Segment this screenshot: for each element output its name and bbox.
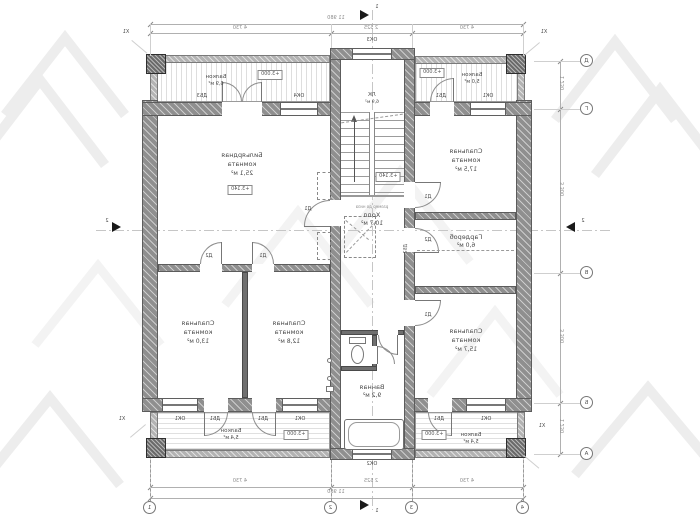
door-opening bbox=[252, 264, 274, 272]
door-tag: ДБ3 bbox=[190, 94, 214, 100]
door-tag: Д1 bbox=[298, 207, 318, 213]
column bbox=[146, 438, 166, 458]
door-opening bbox=[200, 264, 222, 272]
door-opening bbox=[222, 102, 262, 116]
section-arrow-icon bbox=[566, 222, 575, 232]
room-area: 9,2 м² bbox=[346, 393, 398, 400]
section-label: 1 bbox=[372, 509, 382, 515]
dim-text: 3 300 bbox=[560, 319, 566, 353]
grid-bubble: 4 bbox=[516, 501, 529, 514]
door-leaf bbox=[397, 335, 398, 355]
room-label: Бильярдная bbox=[192, 152, 292, 159]
dim-text: 2 525 bbox=[341, 479, 401, 485]
stair-landing-edge bbox=[341, 195, 404, 197]
balcony-label: Балкон bbox=[186, 74, 246, 80]
partition bbox=[341, 366, 377, 371]
corner-axis-label: X1 bbox=[114, 417, 130, 423]
door-opening bbox=[404, 182, 415, 208]
door-leaf bbox=[377, 346, 378, 364]
grid-line bbox=[412, 460, 413, 501]
door-opening bbox=[330, 200, 341, 226]
section-label: 2 bbox=[578, 219, 588, 225]
window bbox=[280, 102, 318, 116]
door-tag: ДБ1 bbox=[200, 417, 230, 423]
corner-axis-label: X1 bbox=[118, 30, 134, 36]
door-leaf bbox=[275, 412, 276, 436]
door-opening bbox=[404, 300, 415, 326]
window bbox=[466, 398, 506, 412]
grid-bubble: Д bbox=[580, 54, 593, 67]
door-tag: ДБ1 bbox=[426, 417, 452, 423]
balcony-rail bbox=[150, 450, 330, 458]
corner-axis-label: X1 bbox=[536, 30, 552, 36]
dim-text: 2 525 bbox=[341, 26, 401, 32]
dim-text: 4 730 bbox=[437, 26, 497, 32]
hall-note: размер до низа bbox=[342, 205, 402, 210]
door-leaf bbox=[304, 226, 330, 227]
door-leaf bbox=[415, 252, 439, 253]
level-mark: +3.140 bbox=[228, 185, 253, 195]
room-area: 10,7 м² bbox=[346, 221, 398, 228]
section-label: 2 bbox=[102, 219, 112, 225]
door-leaf bbox=[221, 242, 222, 264]
window-tag: ОК1 bbox=[162, 417, 198, 423]
floor-plan: Бильярдная комната 25,1 м² +3.140 Спальн… bbox=[0, 0, 700, 525]
room-label: Спальная bbox=[416, 328, 516, 335]
extension-line bbox=[534, 454, 580, 455]
door-tag: Д2 bbox=[418, 238, 438, 244]
extension-line bbox=[534, 273, 580, 274]
room-label: Спальная bbox=[158, 320, 238, 327]
grid-bubble: 3 bbox=[405, 501, 418, 514]
grid-bubble: В bbox=[580, 266, 593, 279]
level-mark: +3.140 bbox=[376, 172, 401, 182]
window-tag: ОК1 bbox=[282, 417, 318, 423]
dimension-line bbox=[150, 487, 523, 488]
door-tag: Д2 bbox=[198, 254, 220, 260]
column bbox=[506, 54, 526, 74]
room-area: 6,0 м² bbox=[416, 243, 516, 250]
room-label: комната bbox=[250, 329, 328, 336]
toilet-tank bbox=[349, 337, 366, 344]
dim-text: 11 980 bbox=[306, 490, 366, 496]
wall bbox=[415, 212, 516, 220]
balcony-area: 6,9 м² bbox=[186, 82, 246, 88]
stair-area: 6,9 м² bbox=[348, 100, 396, 105]
dimension-line bbox=[150, 33, 523, 34]
door-opening bbox=[204, 398, 228, 412]
column bbox=[146, 54, 166, 74]
level-mark: +3.000 bbox=[284, 430, 309, 440]
grid-bubble: 2 bbox=[324, 501, 337, 514]
wardrobe-shelf-line bbox=[417, 250, 514, 251]
stair-label: ЛК bbox=[348, 92, 396, 98]
balcony-area: 5,0 м² bbox=[444, 80, 500, 86]
grid-bubble: А bbox=[580, 447, 593, 460]
room-label: Спальная bbox=[416, 148, 516, 155]
grid-bubble: 1 bbox=[143, 501, 156, 514]
balcony-label: Балкон bbox=[198, 428, 264, 434]
toilet-bowl bbox=[351, 345, 364, 364]
door-leaf bbox=[415, 182, 441, 183]
door-tag: Д1 bbox=[418, 195, 438, 201]
grid-line bbox=[331, 460, 332, 501]
room-area: 12,8 м² bbox=[250, 339, 328, 346]
door-opening bbox=[430, 102, 454, 116]
balcony-label: Балкон bbox=[442, 432, 500, 438]
section-label: 1 bbox=[372, 5, 382, 11]
grid-line bbox=[150, 460, 151, 501]
balcony-rail bbox=[150, 55, 330, 63]
extension-line bbox=[534, 61, 580, 62]
window-tag: ОК2 bbox=[352, 462, 392, 468]
room-label: комната bbox=[416, 157, 516, 164]
door-tag: ДБ1 bbox=[248, 417, 278, 423]
door-opening bbox=[428, 398, 452, 412]
dim-text: 1 230 bbox=[560, 409, 566, 443]
bathtub-inner bbox=[348, 422, 400, 447]
window-tag: ОК1 bbox=[466, 417, 506, 423]
stair-direction-line bbox=[354, 122, 355, 182]
room-area: 15,7 м² bbox=[416, 347, 516, 354]
level-mark: +3.000 bbox=[422, 430, 447, 440]
extension-line bbox=[331, 24, 332, 48]
window bbox=[470, 102, 506, 116]
balcony-label: Балкон bbox=[444, 72, 500, 78]
room-area: 17,5 м² bbox=[416, 167, 516, 174]
door-opening bbox=[252, 398, 276, 412]
grid-line bbox=[523, 460, 524, 501]
door-leaf bbox=[261, 82, 262, 102]
extension-line bbox=[412, 24, 413, 48]
dim-text: 11 980 bbox=[306, 16, 366, 22]
extension-line bbox=[534, 109, 580, 110]
extension-line bbox=[523, 24, 524, 56]
wall bbox=[516, 100, 532, 412]
room-label: Спальная bbox=[250, 320, 328, 327]
door-tag: Д1 bbox=[252, 254, 274, 260]
door-leaf bbox=[415, 300, 441, 301]
dim-text: 4 730 bbox=[210, 479, 270, 485]
pipe-box bbox=[326, 386, 334, 392]
window-tag: ОК1 bbox=[470, 94, 506, 100]
door-tag: ДБ1 bbox=[428, 94, 454, 100]
pipe-riser bbox=[327, 358, 332, 363]
dim-text: 1 230 bbox=[560, 66, 566, 100]
wall bbox=[158, 264, 330, 272]
grid-bubble: Б bbox=[580, 396, 593, 409]
extension-line bbox=[534, 403, 580, 404]
wall bbox=[142, 100, 158, 412]
dimension-line bbox=[560, 61, 561, 454]
level-mark: +3.000 bbox=[258, 70, 283, 80]
stair-stringer bbox=[369, 112, 375, 196]
flue-shaft bbox=[317, 172, 331, 200]
level-mark: +3.000 bbox=[420, 68, 445, 78]
window bbox=[162, 398, 198, 412]
room-area: 13,0 м² bbox=[158, 339, 238, 346]
door-tag: Д1 bbox=[418, 313, 438, 319]
section-arrow-icon bbox=[360, 500, 369, 510]
dim-text: 3 300 bbox=[560, 172, 566, 206]
balcony-area: 5,4 м² bbox=[198, 436, 264, 442]
door-leaf bbox=[252, 242, 253, 264]
grid-bubble: Г bbox=[580, 102, 593, 115]
window-tag: ОК4 bbox=[280, 94, 318, 100]
dim-text: 4 730 bbox=[437, 479, 497, 485]
wall bbox=[330, 48, 341, 460]
balcony-area: 5,4 м² bbox=[442, 440, 500, 446]
pipe-riser bbox=[327, 376, 332, 381]
room-label: Холл bbox=[346, 212, 398, 219]
room-label: Ванная bbox=[346, 384, 398, 391]
extension-line bbox=[150, 24, 151, 56]
wall bbox=[415, 286, 516, 294]
window bbox=[282, 398, 318, 412]
section-arrow-icon bbox=[360, 10, 369, 20]
room-label: комната bbox=[158, 329, 238, 336]
window-tag: ОК3 bbox=[352, 38, 392, 44]
room-area: 25,1 м² bbox=[192, 171, 292, 178]
section-arrow-icon bbox=[112, 222, 121, 232]
window bbox=[352, 48, 392, 60]
room-label: комната bbox=[416, 337, 516, 344]
partition bbox=[242, 272, 248, 398]
dim-text: 4 730 bbox=[210, 26, 270, 32]
corner-axis-label: X1 bbox=[534, 424, 550, 430]
flue-shaft bbox=[317, 232, 331, 260]
dimension-line bbox=[150, 498, 523, 499]
door-tag: ДБ2 bbox=[403, 239, 408, 259]
room-label: комната bbox=[192, 161, 292, 168]
